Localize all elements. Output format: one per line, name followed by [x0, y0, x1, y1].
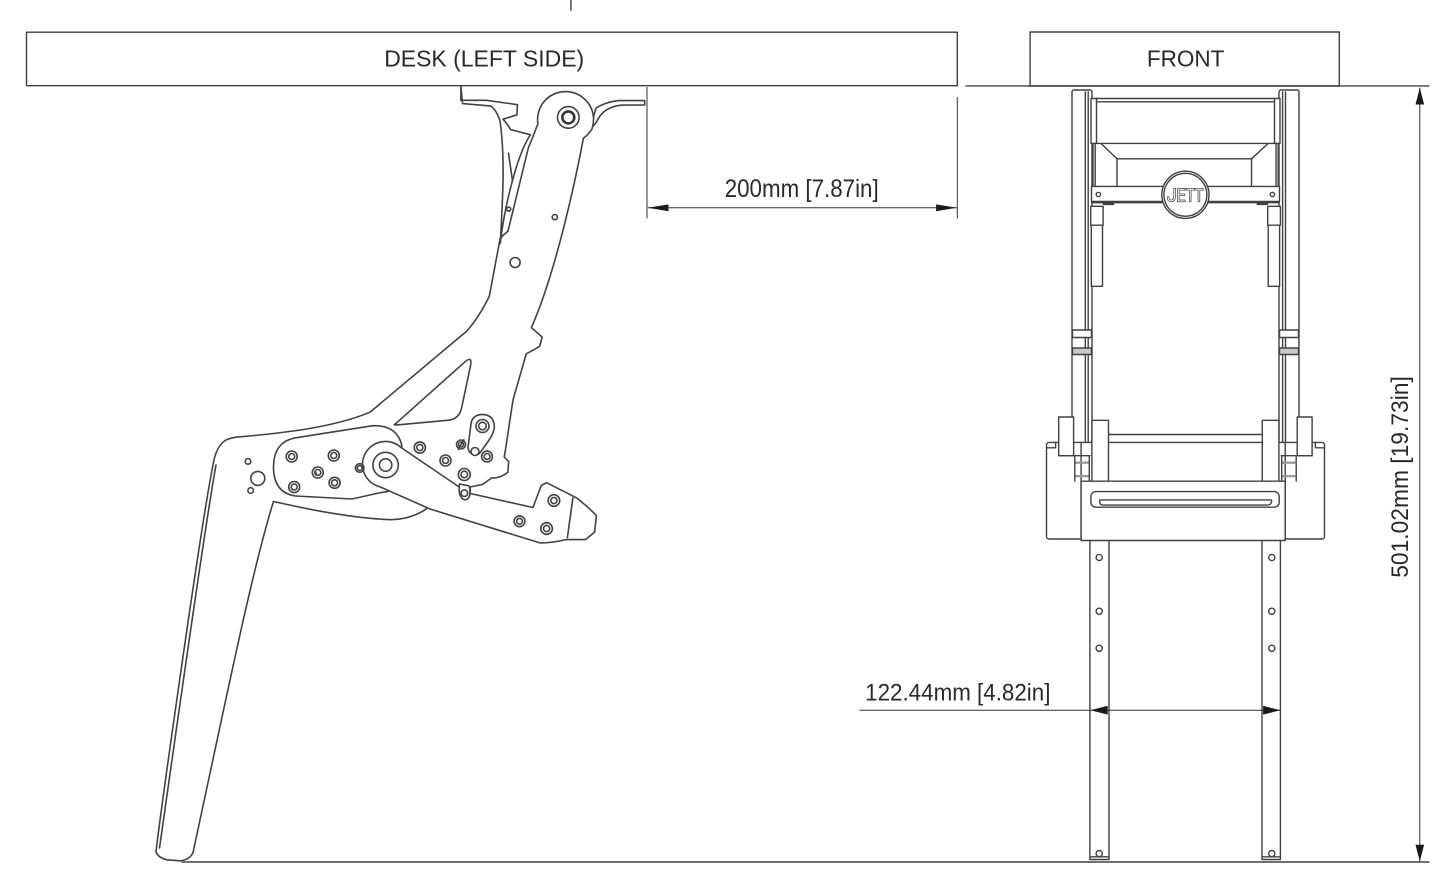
- svg-text:122.44mm [4.82in]: 122.44mm [4.82in]: [865, 679, 1050, 706]
- svg-text:501.02mm [19.73in]: 501.02mm [19.73in]: [1387, 376, 1414, 578]
- svg-text:FRONT: FRONT: [1147, 45, 1225, 71]
- svg-text:200mm [7.87in]: 200mm [7.87in]: [725, 175, 879, 203]
- svg-text:DESK (LEFT SIDE): DESK (LEFT SIDE): [384, 45, 584, 71]
